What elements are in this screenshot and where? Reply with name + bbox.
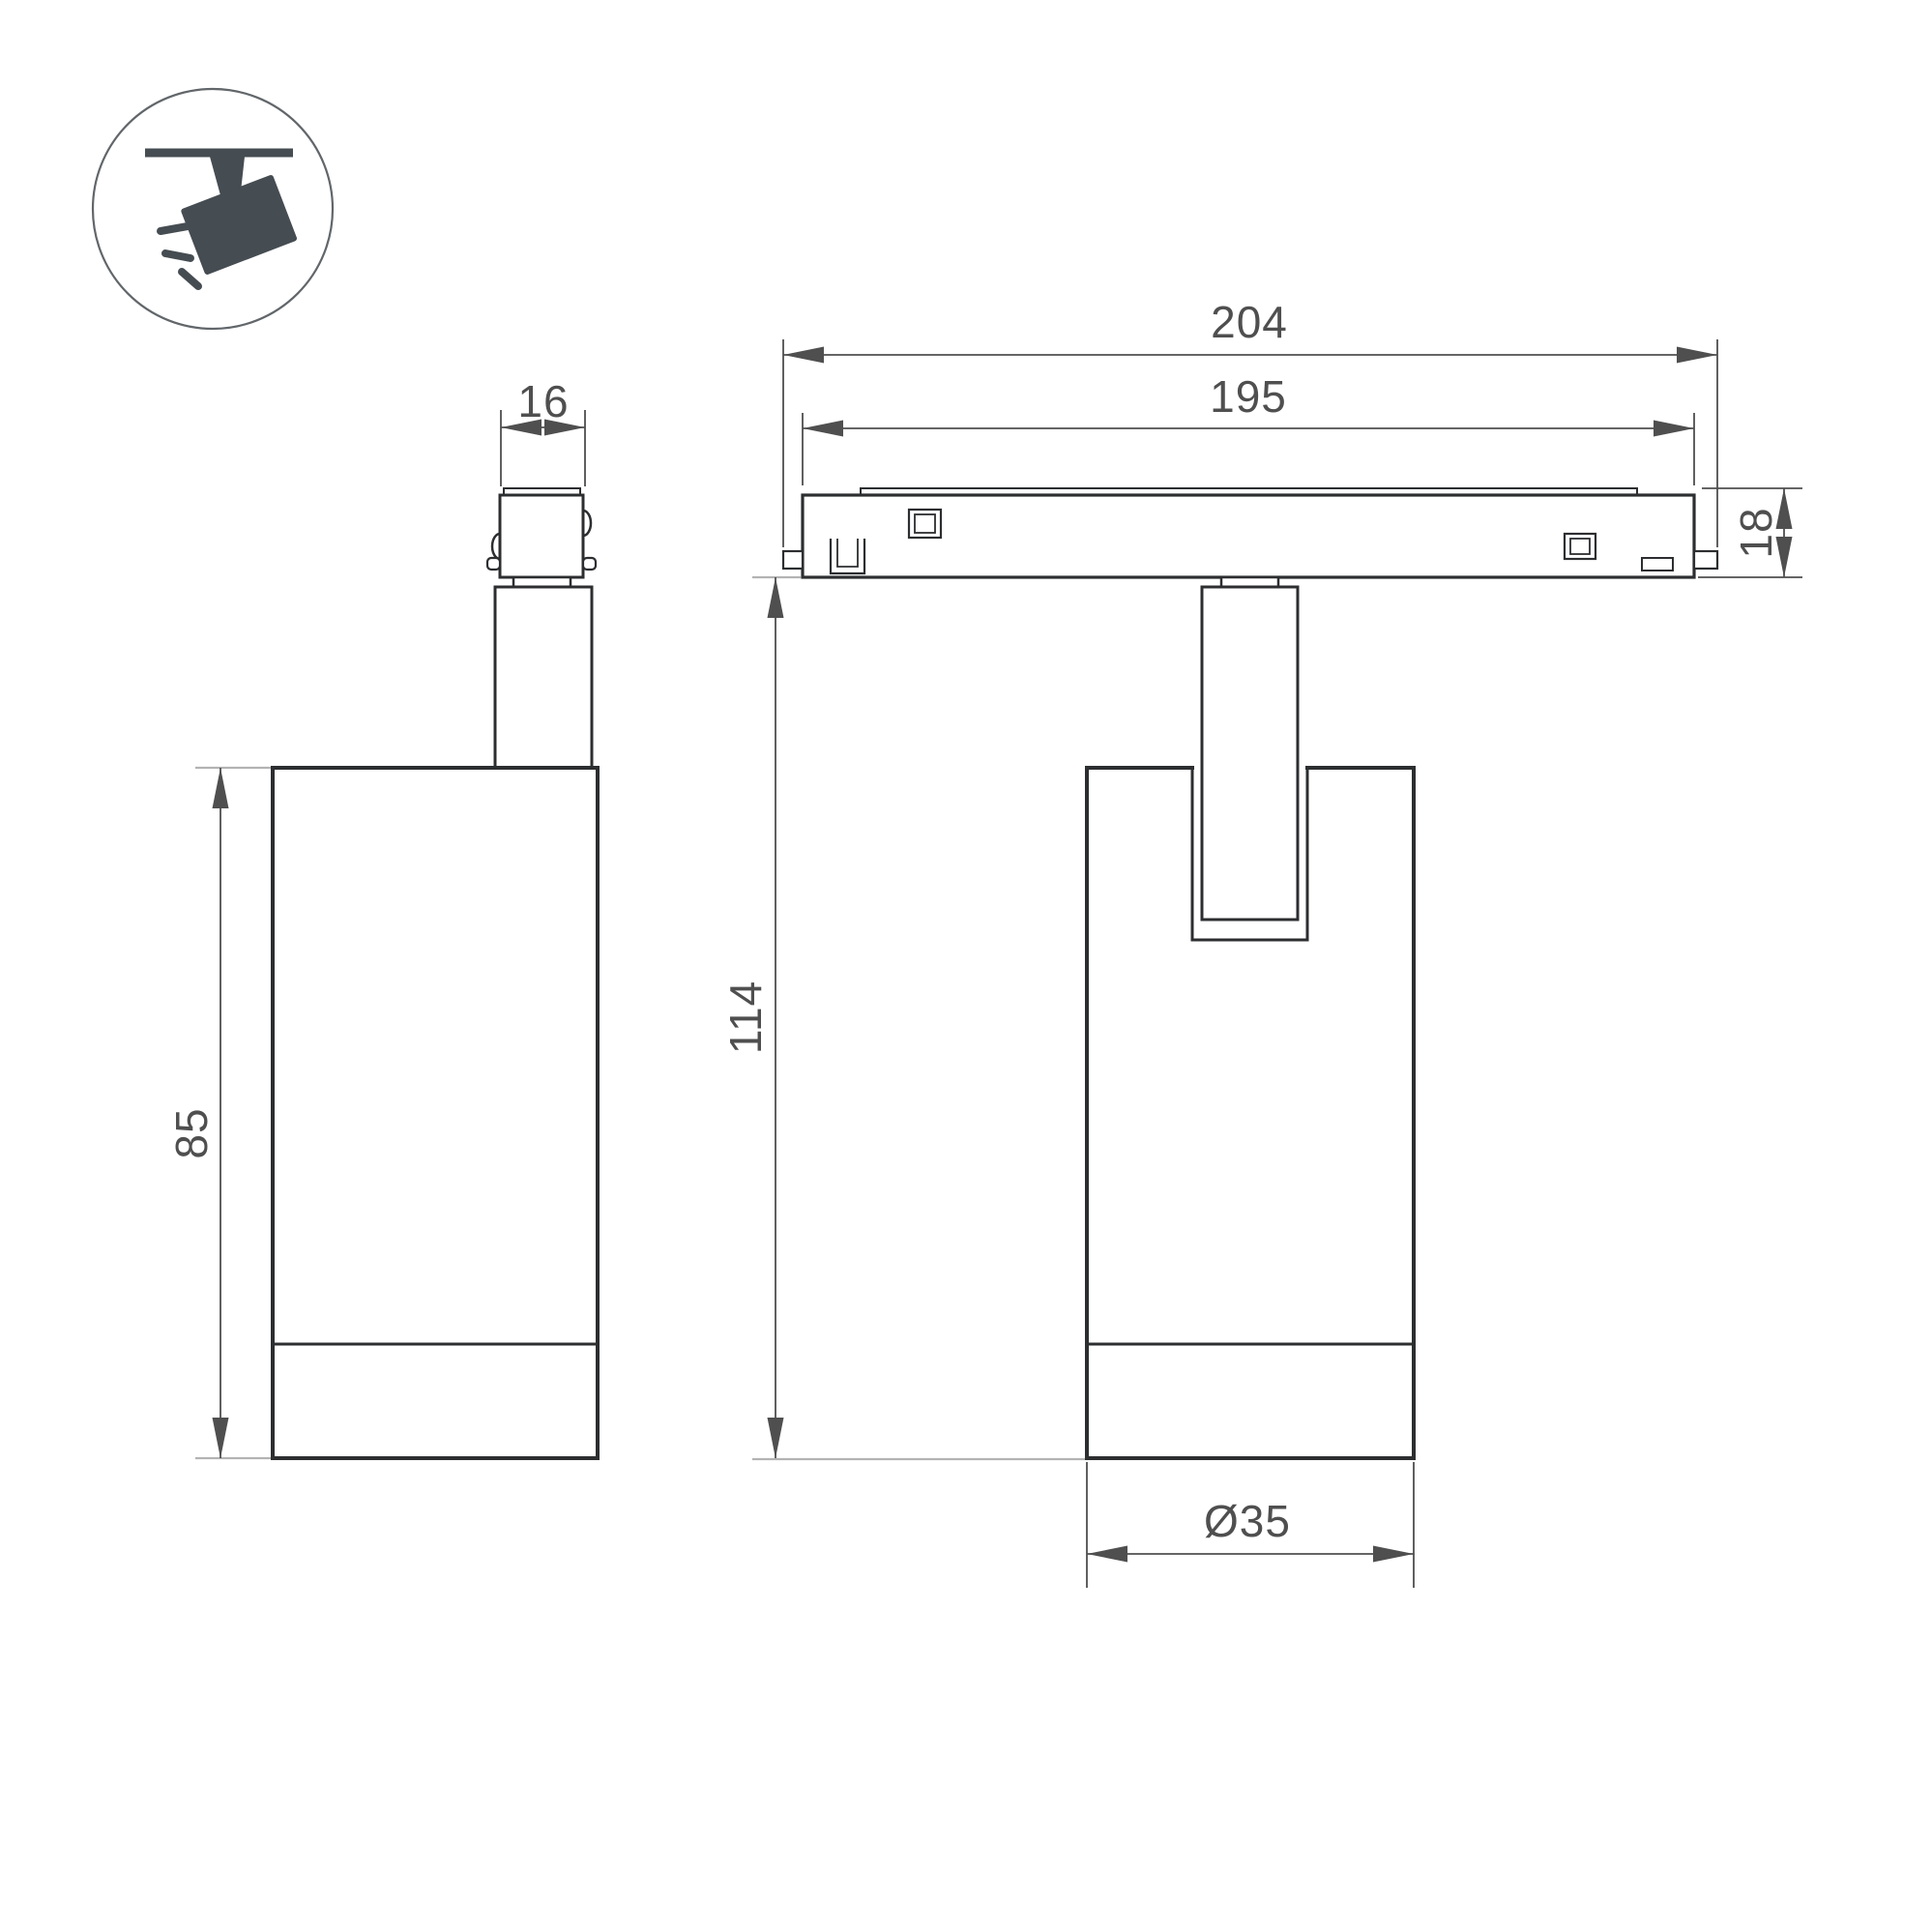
dimension-drawing: 16 204 195 18 85 <box>0 0 1932 1932</box>
dimension-adapter-width: 16 <box>501 376 585 486</box>
dim-label-195: 195 <box>1210 371 1287 422</box>
dim-label-85: 85 <box>166 1107 217 1158</box>
track-rail <box>783 488 1717 577</box>
arrow-left <box>1087 1546 1127 1563</box>
dim-label-d35: Ø35 <box>1204 1496 1291 1546</box>
track-end-clip-left <box>783 551 803 569</box>
arrow-down <box>768 1418 784 1458</box>
track-module-left-inner <box>915 514 935 533</box>
luminaire-front <box>1087 577 1414 1458</box>
adapter-ear-left <box>487 558 500 570</box>
adapter-ear-right <box>583 558 596 570</box>
arrow-left <box>803 421 843 437</box>
track-module-right-inner <box>1570 539 1590 554</box>
front-view <box>783 488 1717 1458</box>
arrow-up <box>213 768 229 808</box>
dimension-housing-height: 85 <box>166 768 271 1458</box>
dim-label-16: 16 <box>517 376 569 426</box>
dimension-overall-height: 114 <box>720 577 1085 1459</box>
arrow-right <box>1677 347 1717 364</box>
housing-side <box>273 768 598 1458</box>
arrow-down <box>213 1418 229 1458</box>
dimension-housing-diameter: Ø35 <box>1087 1462 1414 1588</box>
stem-front <box>1202 587 1298 920</box>
arrow-right <box>1373 1546 1414 1563</box>
dim-label-114: 114 <box>720 981 771 1054</box>
side-view <box>273 488 598 1458</box>
arrow-right <box>1654 421 1694 437</box>
arrow-up <box>768 577 784 618</box>
track-end-clip-right <box>1694 551 1717 569</box>
stem-side <box>495 587 592 768</box>
dim-label-204: 204 <box>1211 297 1288 347</box>
track-adapter <box>500 495 583 577</box>
dimension-track-body-length: 195 <box>803 371 1694 485</box>
track-slot-detail <box>1642 558 1673 571</box>
pictogram-badge <box>93 89 333 329</box>
dim-label-18: 18 <box>1731 507 1781 558</box>
arrow-left <box>783 347 824 364</box>
drawing-page: 16 204 195 18 85 <box>0 0 1932 1932</box>
